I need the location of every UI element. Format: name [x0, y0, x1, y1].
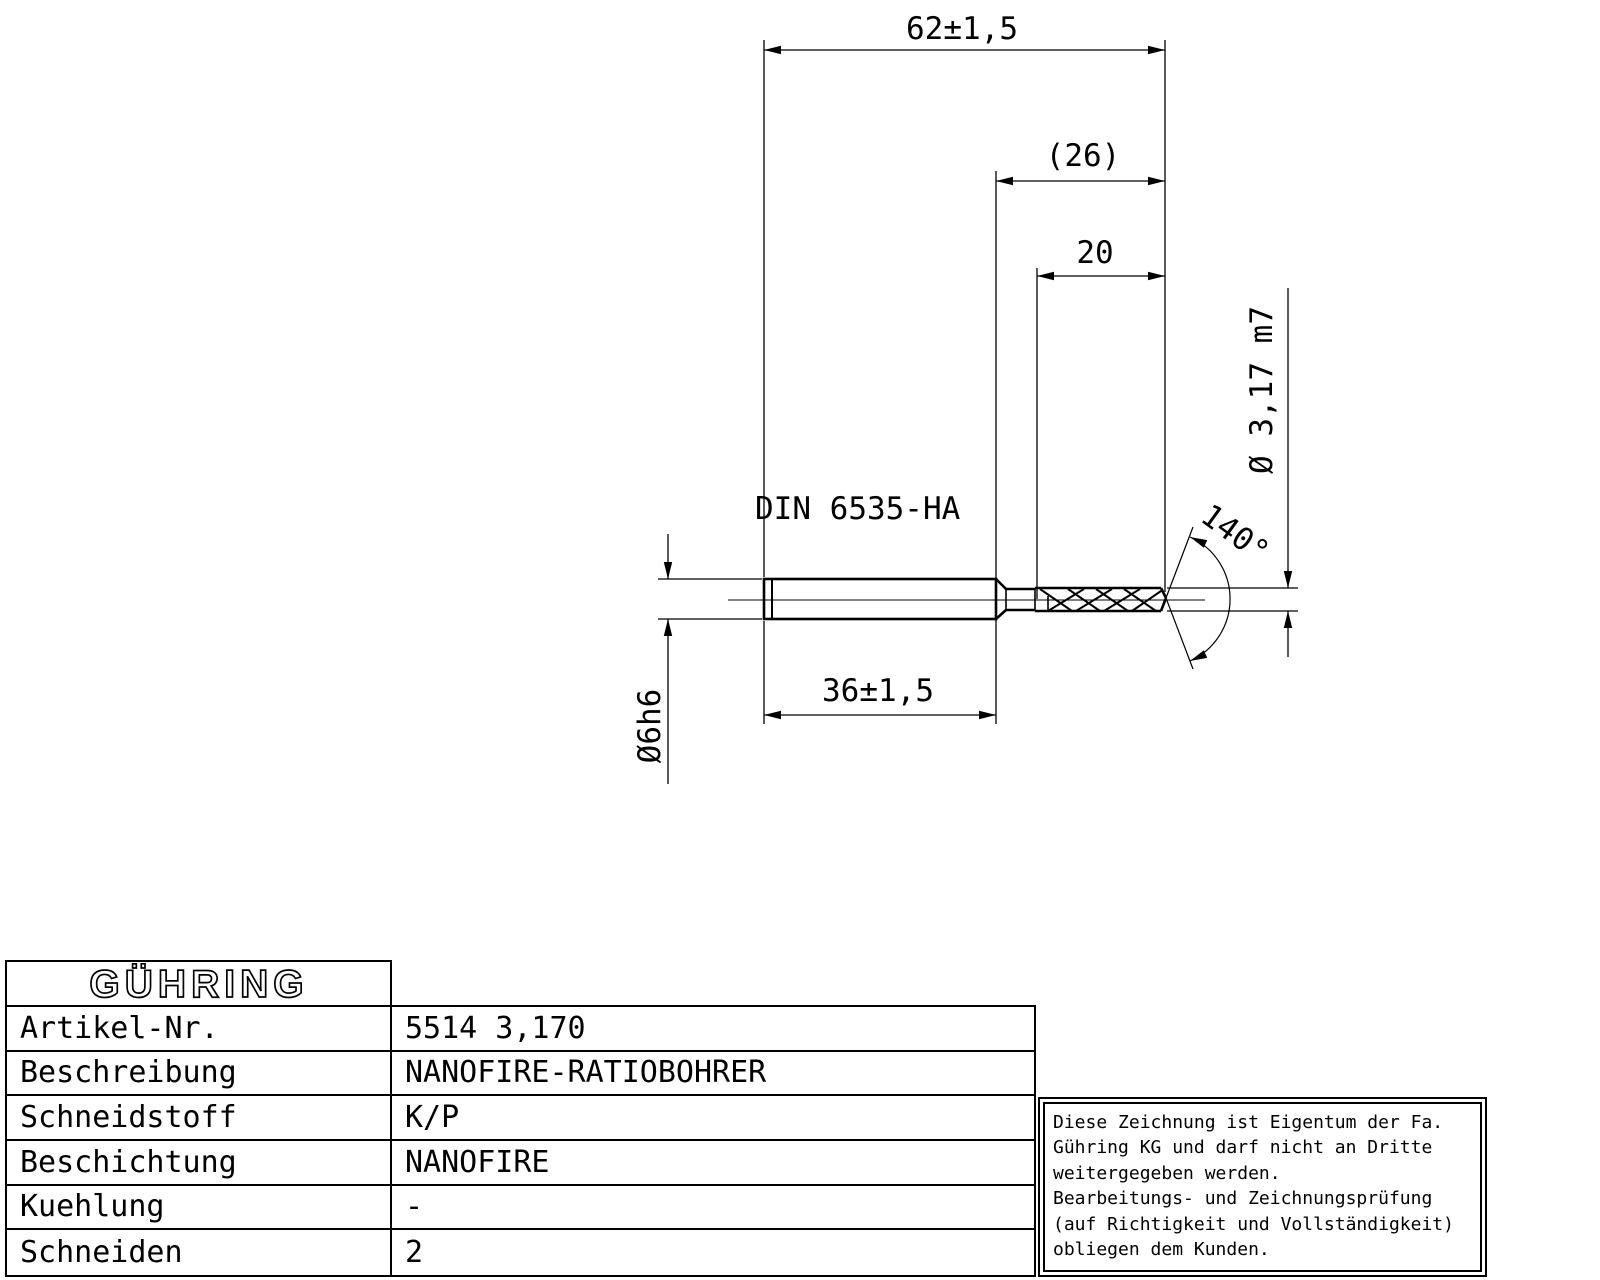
- dimension-flute-ref: (26): [996, 138, 1165, 185]
- row-label-artikel-nr: Artikel-Nr.: [7, 1007, 392, 1052]
- dimension-shank-diameter: Ø6h6: [632, 534, 672, 784]
- taper-bottom: [996, 610, 1006, 619]
- taper-top: [996, 579, 1006, 589]
- dimension-flute-length: 20: [1037, 235, 1165, 280]
- dimension-point-angle: 140°: [1166, 497, 1276, 669]
- dim-drill-diameter-text: Ø 3,17 m7: [1244, 306, 1280, 474]
- row-value-artikel-nr: 5514 3,170: [392, 1007, 1034, 1052]
- dimension-shank-length: 36±1,5: [764, 673, 996, 719]
- arrow-up: [1284, 611, 1292, 628]
- arrow-right: [979, 711, 996, 719]
- arrow-down: [664, 562, 672, 579]
- technical-drawing-page: 62±1,5 (26) 20 36±1,5: [0, 0, 1600, 1280]
- shank-norm-text: DIN 6535-HA: [755, 491, 961, 527]
- arrow-down: [1284, 571, 1292, 588]
- notice-line: weitergegeben werden.: [1053, 1161, 1476, 1186]
- guehring-logo: GÜHRING: [14, 963, 384, 1005]
- dim-flute-ref-text: (26): [1046, 138, 1121, 174]
- row-label-beschreibung: Beschreibung: [7, 1052, 392, 1097]
- point-angle-text: 140°: [1194, 497, 1276, 570]
- arrow-left: [764, 46, 781, 54]
- notice-line: obliegen dem Kunden.: [1053, 1237, 1476, 1262]
- row-value-beschichtung: NANOFIRE: [392, 1141, 1034, 1186]
- row-label-kuehlung: Kuehlung: [7, 1186, 392, 1231]
- angle-arc: [1190, 537, 1230, 661]
- arrow-left: [996, 177, 1013, 185]
- row-label-beschichtung: Beschichtung: [7, 1141, 392, 1186]
- row-value-schneidstoff: K/P: [392, 1096, 1034, 1141]
- notice-line: (auf Richtigkeit und Vollständigkeit): [1053, 1212, 1476, 1237]
- notice-line: Bearbeitungs- und Zeichnungsprüfung: [1053, 1186, 1476, 1211]
- shank-outline: [764, 579, 996, 619]
- row-value-beschreibung: NANOFIRE-RATIOBOHRER: [392, 1052, 1034, 1097]
- dim-overall-length-text: 62±1,5: [906, 11, 1018, 47]
- dim-flute-length-text: 20: [1076, 235, 1113, 271]
- row-value-schneiden: 2: [392, 1230, 1034, 1275]
- arrow-right: [1148, 177, 1165, 185]
- row-value-kuehlung: -: [392, 1186, 1034, 1231]
- notice-line: Gühring KG und darf nicht an Dritte: [1053, 1135, 1476, 1160]
- arrow-arc-top: [1188, 533, 1207, 548]
- row-label-schneiden: Schneiden: [7, 1230, 392, 1275]
- dimension-overall-length: 62±1,5: [764, 11, 1165, 54]
- arrow-right: [1148, 46, 1165, 54]
- dimension-drill-diameter: Ø 3,17 m7: [1244, 288, 1292, 657]
- spec-table-grid: Artikel-Nr. 5514 3,170 Beschreibung NANO…: [5, 1005, 1036, 1277]
- guehring-logo-text: GÜHRING: [89, 963, 308, 1005]
- extension-lines: [658, 40, 1298, 724]
- ownership-notice-box: Diese Zeichnung ist Eigentum der Fa. Güh…: [1038, 1097, 1487, 1277]
- spec-table: GÜHRING Artikel-Nr. 5514 3,170 Beschreib…: [5, 960, 1036, 1277]
- notice-line: Diese Zeichnung ist Eigentum der Fa.: [1053, 1110, 1476, 1135]
- arrow-left: [1037, 272, 1054, 280]
- drill-body: [764, 579, 1166, 619]
- dim-shank-diameter-text: Ø6h6: [632, 689, 668, 764]
- ownership-notice-inner: Diese Zeichnung ist Eigentum der Fa. Güh…: [1043, 1102, 1482, 1272]
- dim-shank-length-text: 36±1,5: [822, 673, 934, 709]
- logo-cell: GÜHRING: [5, 960, 392, 1007]
- angle-line-lower: [1166, 598, 1193, 669]
- arrow-right: [1148, 272, 1165, 280]
- row-label-schneidstoff: Schneidstoff: [7, 1096, 392, 1141]
- arrow-left: [764, 711, 781, 719]
- arrow-up: [664, 619, 672, 636]
